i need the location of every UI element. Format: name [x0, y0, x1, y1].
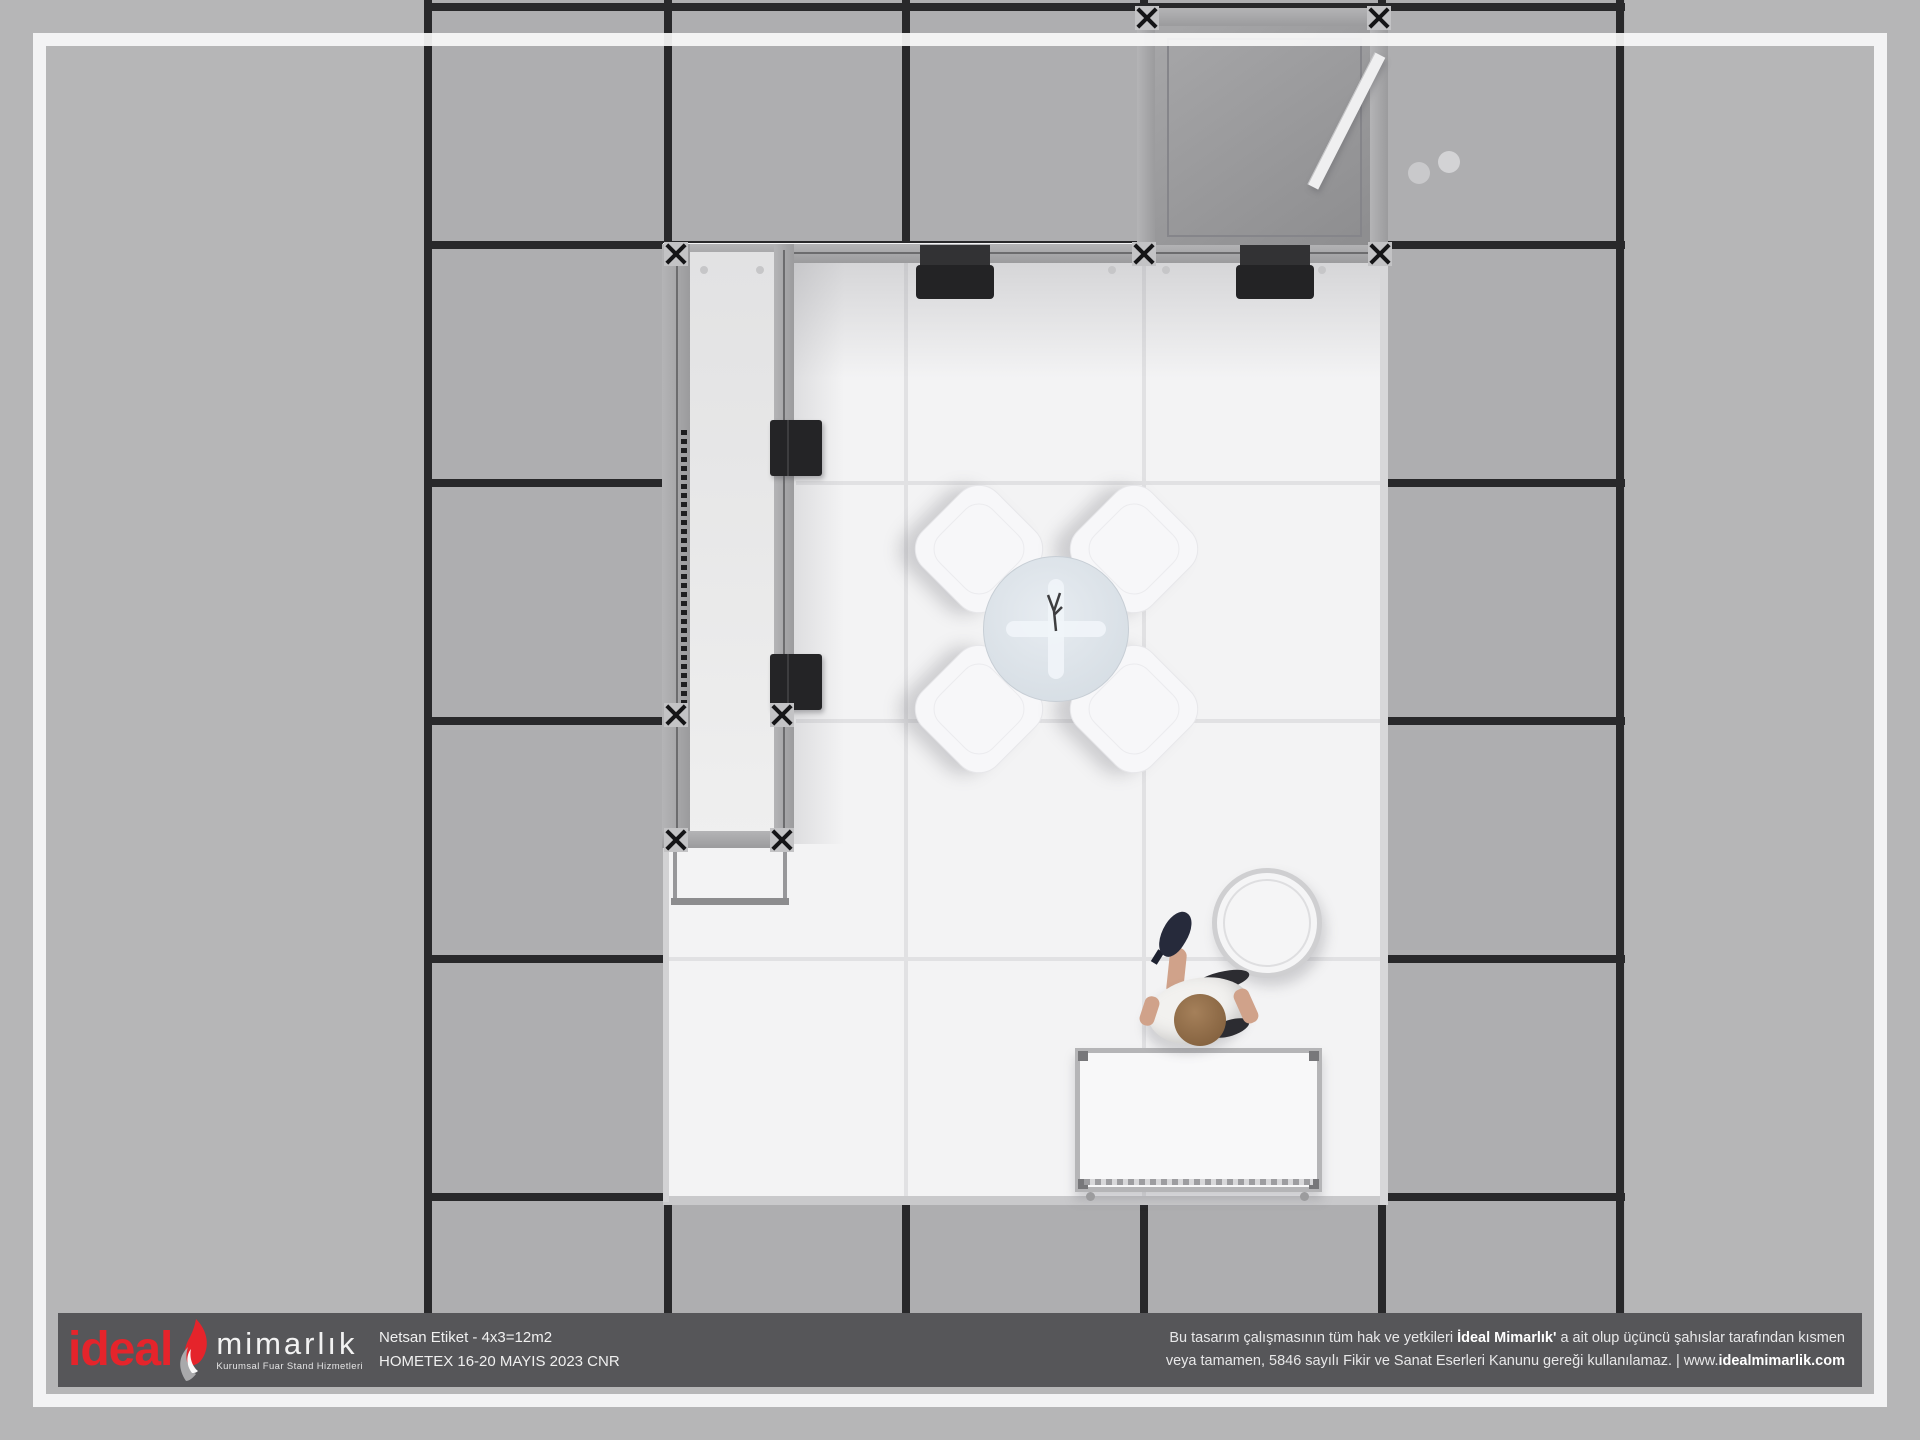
platform-front-edge	[663, 1196, 1388, 1205]
light-box	[1236, 265, 1314, 299]
wall-screen	[770, 420, 822, 476]
logo-brand2-text: mimarlık	[216, 1328, 363, 1359]
cabin-right-wall	[1370, 8, 1388, 263]
wall-screen	[770, 654, 822, 710]
floor-grid-line	[424, 0, 432, 1313]
frame-connector	[1368, 242, 1392, 266]
desk-foot	[1300, 1192, 1309, 1201]
cabin-left-wall	[1137, 8, 1155, 263]
wall-foot	[1162, 266, 1170, 274]
frame-connector	[1135, 6, 1159, 30]
round-glass-table	[983, 556, 1129, 702]
door-knob	[1438, 151, 1460, 173]
frame-connector	[664, 703, 688, 727]
platform-seam	[904, 263, 908, 1197]
closet-outer-wall-profile	[676, 250, 678, 842]
floor-grid-line	[1616, 0, 1624, 1313]
wall-shadow	[794, 252, 844, 844]
frame-connector	[664, 242, 688, 266]
platform-seam	[796, 481, 1382, 485]
rack-post	[673, 848, 677, 903]
light-box	[920, 245, 990, 265]
logo-brand-text: ideal	[68, 1326, 172, 1374]
wall-foot	[1108, 266, 1116, 274]
frame-connector	[1367, 6, 1391, 30]
logo-secondary: mimarlık Kurumsal Fuar Stand Hizmetleri	[216, 1328, 363, 1372]
desk-bracket	[1309, 1051, 1319, 1061]
frame-connector	[1132, 242, 1156, 266]
logo-tagline: Kurumsal Fuar Stand Hizmetleri	[216, 1362, 363, 1372]
wall-foot	[700, 266, 708, 274]
wall-foot	[1318, 266, 1326, 274]
cabin-top-wall	[1137, 8, 1388, 26]
light-box	[1240, 245, 1310, 265]
person-top-view	[1130, 890, 1300, 1070]
closet-partition-profile	[783, 250, 785, 842]
person-head	[1174, 994, 1226, 1046]
copyright-line1: Bu tasarım çalışmasının tüm hak ve yetki…	[1166, 1327, 1845, 1350]
project-info: Netsan Etiket - 4x3=12m2 HOMETEX 16-20 M…	[379, 1326, 620, 1374]
frame-connector	[770, 828, 794, 852]
desk-foot	[1086, 1192, 1095, 1201]
frame-connector	[664, 828, 688, 852]
desk-kick-panel	[1084, 1179, 1313, 1185]
closet-interior	[690, 252, 774, 840]
wall-foot	[756, 266, 764, 274]
table-plant	[1036, 585, 1076, 635]
floor-grid-line	[424, 3, 1625, 11]
light-box	[916, 265, 994, 299]
label-sample-strip	[681, 430, 687, 712]
door-knob	[1408, 162, 1430, 184]
copyright-notice: Bu tasarım çalışmasının tüm hak ve yetki…	[1166, 1327, 1845, 1373]
project-line1: Netsan Etiket - 4x3=12m2	[379, 1326, 620, 1350]
desk-bracket	[1078, 1051, 1088, 1061]
frame-connector	[770, 703, 794, 727]
project-line2: HOMETEX 16-20 MAYIS 2023 CNR	[379, 1350, 620, 1374]
platform-left-edge	[663, 846, 669, 1202]
platform-right-edge	[1380, 245, 1388, 1205]
rack-rail	[671, 898, 789, 905]
flame-leaf-icon	[176, 1319, 210, 1381]
rack-post	[783, 848, 787, 903]
copyright-line2: veya tamamen, 5846 sayılı Fikir ve Sanat…	[1166, 1350, 1845, 1373]
ideal-mimarlik-logo: ideal mimarlık Kurumsal Fuar Stand Hizme…	[68, 1319, 363, 1381]
render-canvas: ideal mimarlık Kurumsal Fuar Stand Hizme…	[0, 0, 1920, 1440]
footer-bar: ideal mimarlık Kurumsal Fuar Stand Hizme…	[58, 1313, 1862, 1387]
